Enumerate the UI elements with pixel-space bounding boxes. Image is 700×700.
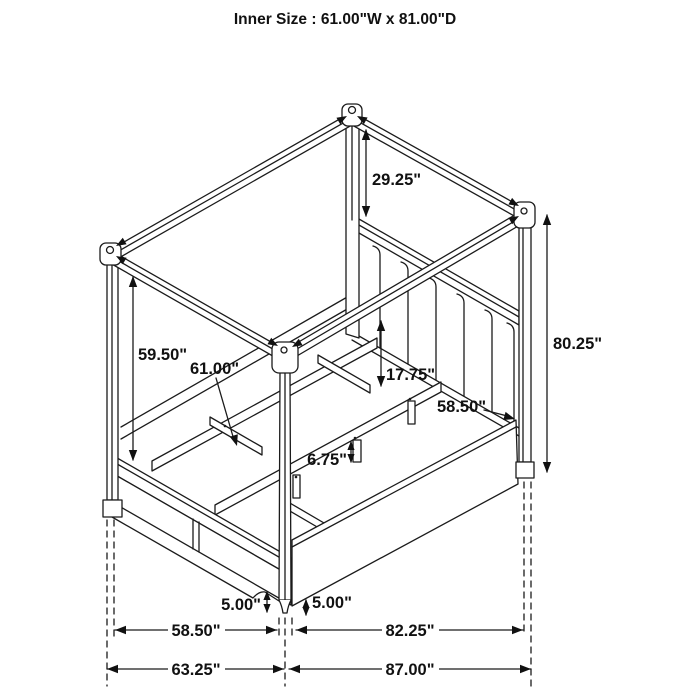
post-front-foot [279,600,291,613]
headboard [352,215,519,436]
dim-label-overall-length: 87.00" [385,661,434,679]
bed-dimension-diagram: Inner Size : 61.00"W x 81.00"D [0,0,700,700]
dim-label-canopy-underside: 59.50" [138,346,187,364]
dim-label-canopy-gap: 29.25" [372,171,421,189]
dim-label-inner-width: 61.00" [190,360,239,378]
support-leg [408,401,415,424]
dim-label-overall-width: 63.25" [171,661,220,679]
post-right [516,227,534,478]
post-left-foot [103,500,122,517]
dim-label-rail-span: 58.50" [437,398,486,416]
dim-label-headboard-panel: 17.75" [386,366,435,384]
dim-label-leg-height: 6.75" [307,451,347,469]
diagram-title: Inner Size : 61.00"W x 81.00"D [234,11,456,28]
dim-label-footboard-width: 58.50" [171,622,220,640]
drawer-faces [112,473,291,605]
canopy-frame [100,104,535,373]
support-leg [293,475,300,498]
dim-label-side-length: 82.25" [385,622,434,640]
dim-label-footboard-clearance: 5.00" [221,596,261,614]
footboard-drawers [112,455,291,605]
post-back [346,124,359,338]
bed-dimension-diagram-page: Inner Size : 61.00"W x 81.00"D [0,0,700,700]
dim-label-post-height: 80.25" [553,335,602,353]
canopy-corner-cap [514,202,535,228]
support-leg [353,440,361,462]
dim-label-side-clearance: 5.00" [312,594,352,612]
post-front [279,372,291,613]
post-right-foot [516,462,534,478]
